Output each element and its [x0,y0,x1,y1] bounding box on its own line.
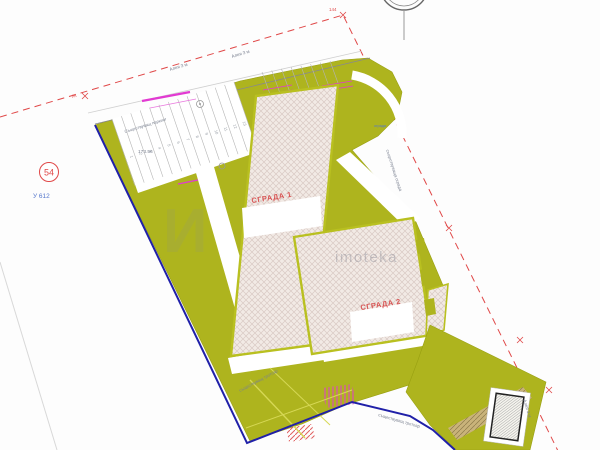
transformer-station [483,387,530,446]
cadastral-tick [446,225,452,231]
bottom-right-parcel [406,325,546,450]
sidewalk-label-2: съществуващ тротоар [378,412,421,429]
watermark-brand-text: imoteka [335,249,398,266]
survey-circle-icon [380,0,428,40]
cadastral-tick [517,337,523,343]
cadastral-tick [82,93,88,99]
corner-point-label: 144 [329,7,337,12]
site-plan-drawing: 12345678910111213 [0,0,600,450]
elevation-label: 173.56 [138,149,153,155]
site-plan-canvas: 12345678910111213 [0,0,600,450]
cadastral-tick [546,387,552,393]
parcel-number: 54 [44,168,54,178]
sheet-margin-line [0,262,57,450]
watermark-logo-mark: И [163,197,208,266]
parcel-number-badge: 54 [40,163,59,182]
alley-label-1: Алея 3 м [169,62,188,72]
magenta-hatch-patch [322,384,356,408]
alley-label-2: Алея 3 м [231,49,250,59]
cadastral-tick [340,12,346,18]
fence-small-label: ограда [374,124,387,128]
survey-point-label: У 612 [33,193,50,200]
fence-label: съществуваща ограда [385,149,403,192]
boundary-mark-label: ЛК [71,92,78,98]
